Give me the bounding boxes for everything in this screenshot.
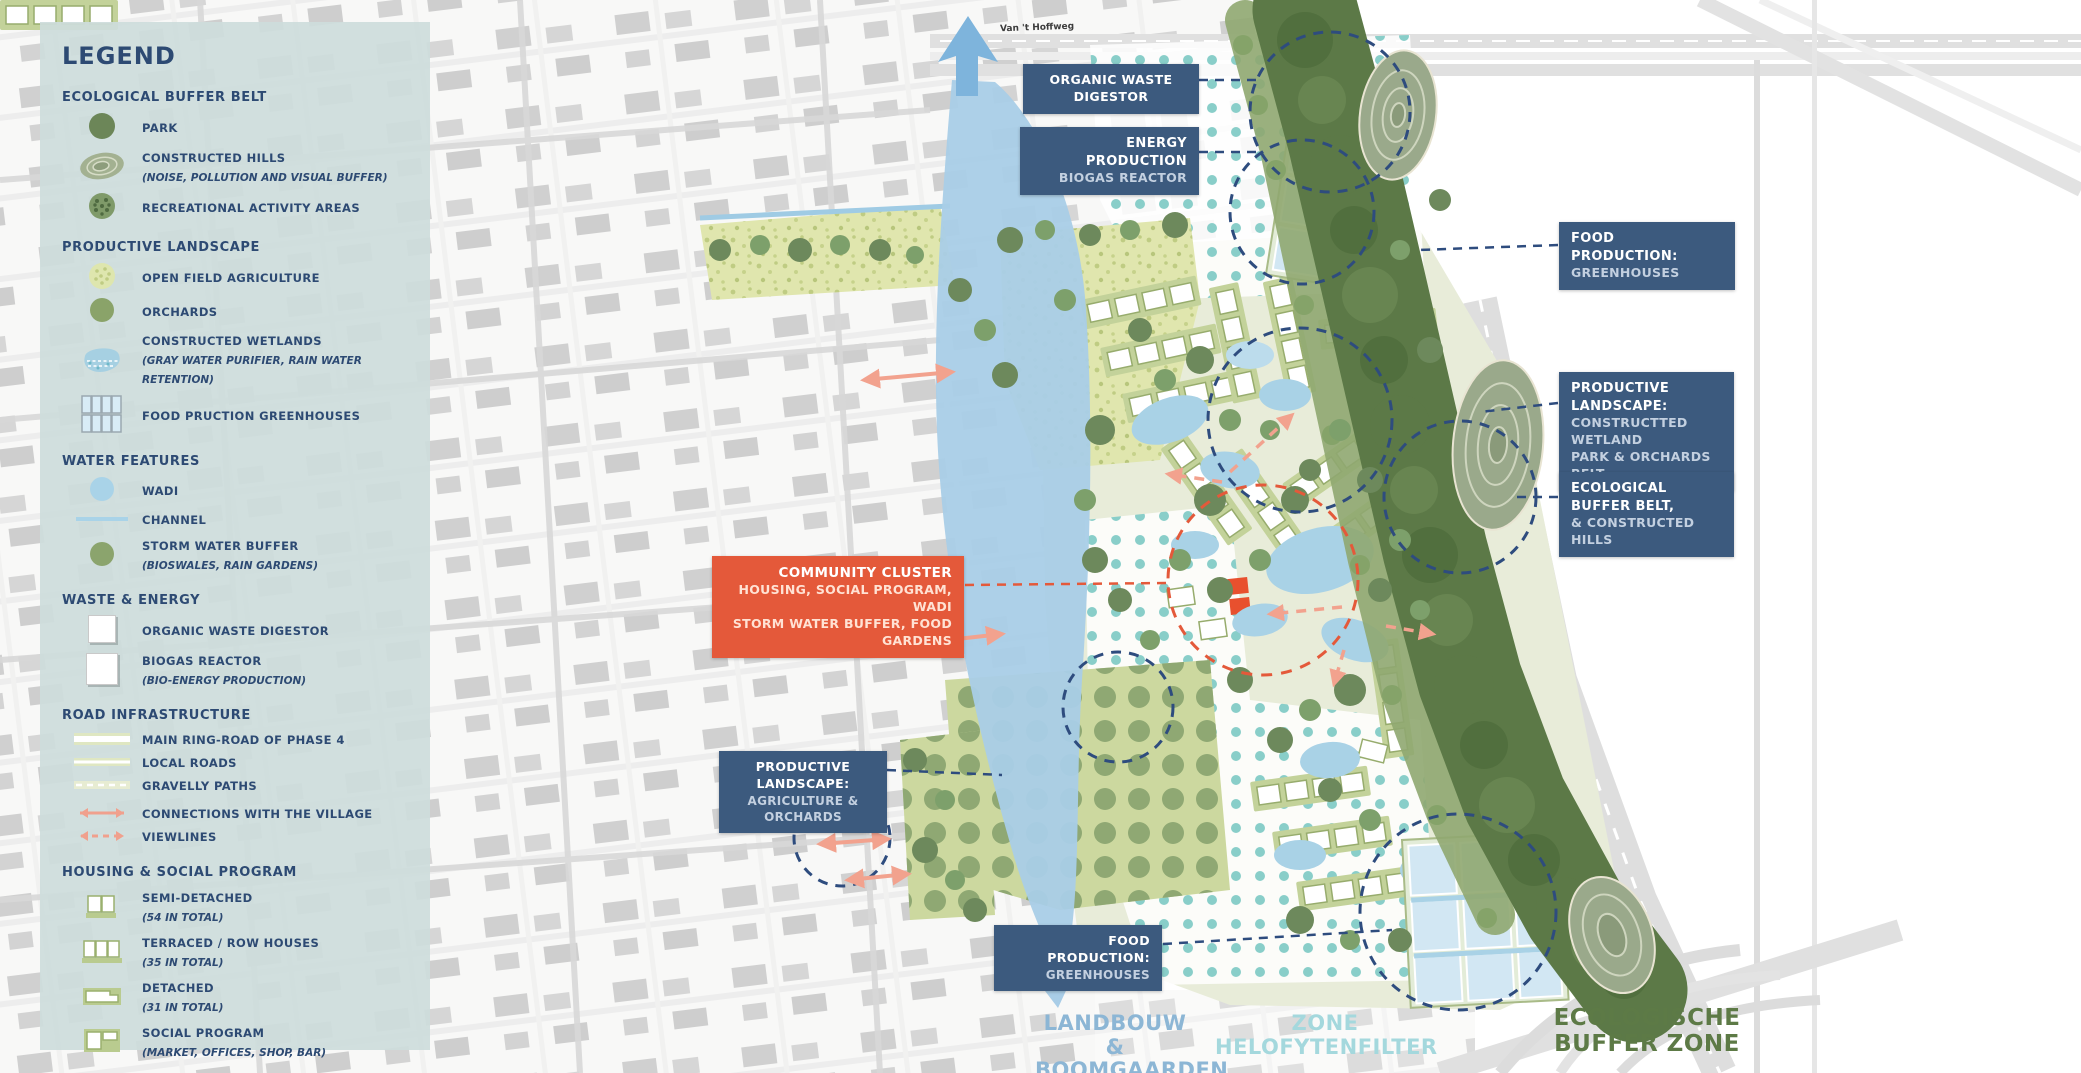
legend-item-open-field-agriculture: OPEN FIELD AGRICULTURE [40, 262, 430, 290]
storm-water-swatch-icon [62, 541, 142, 567]
masterplan-canvas: LEGEND ECOLOGICAL BUFFER BELT PARK CONST… [0, 0, 2081, 1073]
zone-text-helofytenfilter: ZONEHELOFYTENFILTER [1215, 1012, 1435, 1059]
label-community-cluster: COMMUNITY CLUSTER HOUSING, SOCIAL PROGRA… [712, 556, 964, 658]
wadi-swatch-icon [62, 476, 142, 502]
recreation-swatch-icon [62, 192, 142, 220]
agriculture-swatch-icon [62, 262, 142, 290]
legend-item-constructed-hills: CONSTRUCTED HILLS (NOISE, POLLUTION AND … [40, 147, 430, 185]
legend-item-channel: CHANNEL [40, 509, 430, 528]
legend-item-main-ring-road: MAIN RING-ROAD OF PHASE 4 [40, 729, 430, 748]
legend-section-road-infrastructure: ROAD INFRASTRUCTURE [40, 708, 430, 723]
legend-item-orchards: ORCHARDS [40, 297, 430, 323]
zone-text-ecologische-buffer: ECOLOGISCHEBUFFER ZONE [1532, 1006, 1762, 1058]
zone-text-landbouw: LANDBOUW &BOOMGAARDEN [1035, 1012, 1195, 1073]
legend-item-gravelly-paths: GRAVELLY PATHS [40, 775, 430, 794]
legend-item-connections: CONNECTIONS WITH THE VILLAGE [40, 803, 430, 822]
detached-swatch-icon [62, 982, 142, 1010]
legend-item-storm-water-buffer: STORM WATER BUFFER (BIOSWALES, RAIN GARD… [40, 535, 430, 573]
legend-item-biogas-reactor: BIOGAS REACTOR (BIO-ENERGY PRODUCTION) [40, 650, 430, 688]
legend-section-productive-landscape: PRODUCTIVE LANDSCAPE [40, 240, 430, 255]
legend-item-recreational: RECREATIONAL ACTIVITY AREAS [40, 192, 430, 220]
label-food-production-top: FOOD PRODUCTION: GREENHOUSES [1559, 222, 1735, 290]
legend-section-water-features: WATER FEATURES [40, 454, 430, 469]
legend-item-local-roads: LOCAL ROADS [40, 752, 430, 771]
hills-swatch-icon [62, 150, 142, 182]
terraced-swatch-icon [62, 936, 142, 966]
legend-item-park: PARK [40, 112, 430, 140]
legend-section-ecological-buffer-belt: ECOLOGICAL BUFFER BELT [40, 90, 430, 105]
label-energy-production: ENERGY PRODUCTION BIOGAS REACTOR [1020, 127, 1199, 195]
label-ecological-buffer-belt: ECOLOGICAL BUFFER BELT, & CONSTRUCTED HI… [1559, 472, 1734, 557]
biogas-swatch-icon [62, 653, 142, 685]
legend-section-waste-energy: WASTE & ENERGY [40, 593, 430, 608]
connections-arrow-icon [62, 805, 142, 821]
legend-item-organic-waste-digestor: ORGANIC WASTE DIGESTOR [40, 615, 430, 643]
legend-item-wadi: WADI [40, 476, 430, 502]
legend-section-housing-social: HOUSING & SOCIAL PROGRAM [40, 865, 430, 880]
ring-road-swatch-icon [62, 732, 142, 746]
legend-item-greenhouses: FOOD PRUCTION GREENHOUSES [40, 394, 430, 434]
local-roads-swatch-icon [62, 757, 142, 767]
semi-detached-swatch-icon [62, 891, 142, 921]
legend-item-viewlines: VIEWLINES [40, 826, 430, 845]
legend-item-terraced: TERRACED / ROW HOUSES (35 IN TOTAL) [40, 932, 430, 970]
digestor-swatch-icon [62, 615, 142, 643]
channel-swatch-icon [62, 515, 142, 523]
wetlands-swatch-icon [62, 341, 142, 377]
greenhouse-swatch-icon [62, 394, 142, 434]
gravelly-paths-swatch-icon [62, 780, 142, 790]
legend-item-social-program: SOCIAL PROGRAM (MARKET, OFFICES, SHOP, B… [40, 1022, 430, 1060]
label-productive-landscape-bottom: PRODUCTIVE LANDSCAPE: AGRICULTURE & ORCH… [719, 751, 887, 833]
park-swatch-icon [62, 112, 142, 140]
label-food-production-bottom: FOOD PRODUCTION: GREENHOUSES [994, 925, 1162, 991]
legend-title: LEGEND [40, 42, 430, 70]
orchards-swatch-icon [62, 297, 142, 323]
legend-panel: LEGEND ECOLOGICAL BUFFER BELT PARK CONST… [40, 22, 430, 1050]
viewlines-arrow-icon [62, 828, 142, 844]
legend-item-semi-detached: SEMI-DETACHED (54 IN TOTAL) [40, 887, 430, 925]
legend-item-detached: DETACHED (31 IN TOTAL) [40, 977, 430, 1015]
legend-item-constructed-wetlands: CONSTRUCTED WETLANDS (GRAY WATER PURIFIE… [40, 330, 430, 387]
label-organic-waste-digestor: ORGANIC WASTE DIGESTOR [1023, 64, 1199, 114]
social-program-swatch-icon [62, 1026, 142, 1056]
